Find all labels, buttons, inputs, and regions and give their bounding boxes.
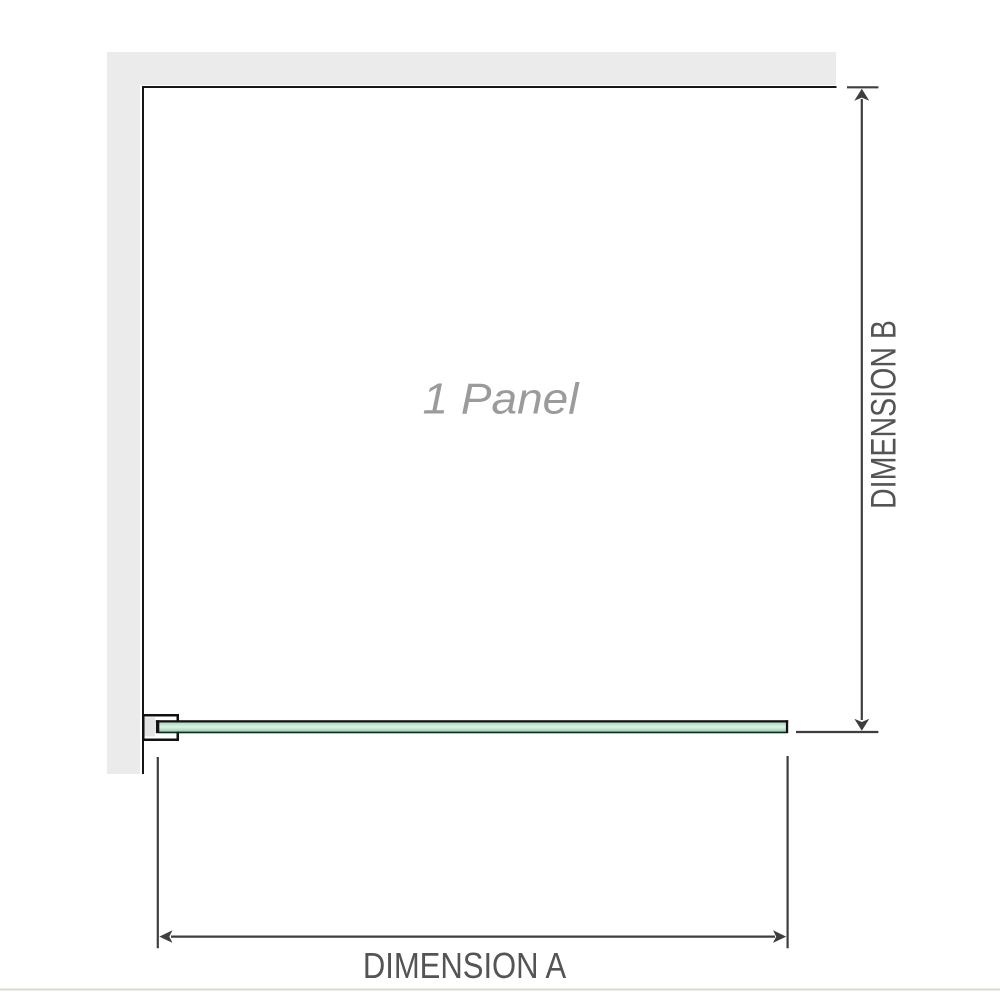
svg-text:1 Panel: 1 Panel [423, 373, 581, 423]
svg-text:DIMENSION B: DIMENSION B [864, 320, 903, 509]
svg-text:DIMENSION A: DIMENSION A [363, 946, 567, 987]
